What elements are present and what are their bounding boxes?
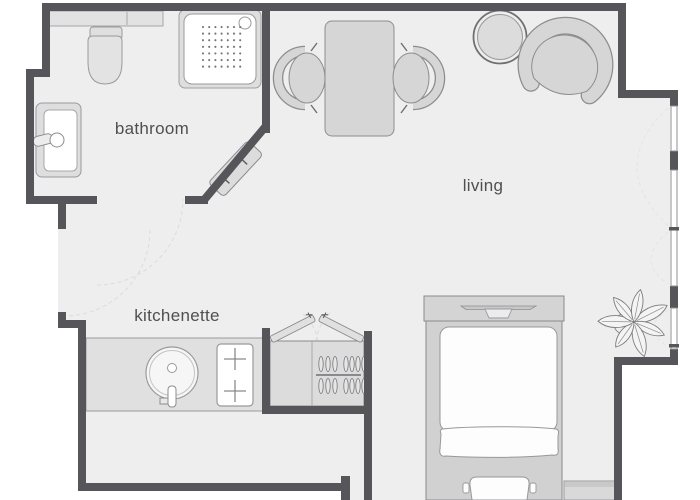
window-1 bbox=[671, 106, 677, 151]
window-tick-2 bbox=[669, 344, 679, 348]
wall-step-right-lower bbox=[618, 357, 678, 365]
wall-closet-south bbox=[262, 406, 372, 414]
wardrobe bbox=[270, 341, 366, 406]
floorplan: bathroom living kitchenette bbox=[0, 0, 700, 500]
wall-bottom-stub bbox=[341, 476, 350, 500]
armchair bbox=[521, 17, 613, 102]
window-tick-1 bbox=[669, 227, 679, 231]
wall-kitchen-left bbox=[78, 320, 86, 491]
wall-bottom bbox=[78, 483, 350, 491]
windows bbox=[669, 106, 679, 349]
floorplan-canvas: bathroom living kitchenette bbox=[0, 0, 700, 500]
wall-kitchen-closet-divider bbox=[262, 328, 270, 414]
wall-top bbox=[42, 3, 626, 11]
wall-step-right bbox=[618, 90, 678, 98]
dining-table bbox=[325, 21, 394, 136]
blanket bbox=[440, 427, 559, 458]
duvet bbox=[440, 327, 557, 431]
wall-bathroom-right bbox=[262, 3, 270, 133]
wall-window-mullion-1 bbox=[670, 151, 678, 170]
room-label-bathroom: bathroom bbox=[115, 119, 189, 138]
wall-window-top bbox=[670, 90, 678, 106]
bed-bench bbox=[424, 296, 564, 321]
room-label-living: living bbox=[463, 176, 504, 195]
wall-closet-right bbox=[364, 331, 372, 500]
stove bbox=[217, 344, 253, 406]
pillow bbox=[463, 477, 536, 500]
nightstand bbox=[564, 481, 617, 500]
wall-left bbox=[26, 69, 34, 204]
wall-entry-stub bbox=[58, 196, 66, 229]
window-3 bbox=[671, 308, 677, 349]
shower-tray bbox=[179, 10, 261, 88]
sink-drain bbox=[168, 364, 177, 373]
bathroom-sink bbox=[32, 103, 81, 177]
wall-top-right bbox=[618, 3, 626, 98]
wall-window-mullion-2 bbox=[670, 286, 678, 308]
wall-top-left bbox=[42, 3, 50, 76]
room-label-kitchenette: kitchenette bbox=[134, 306, 220, 325]
bed bbox=[426, 321, 562, 500]
wall-right-lower bbox=[614, 357, 622, 500]
wall-shelf bbox=[49, 11, 163, 26]
toilet bbox=[88, 27, 122, 84]
